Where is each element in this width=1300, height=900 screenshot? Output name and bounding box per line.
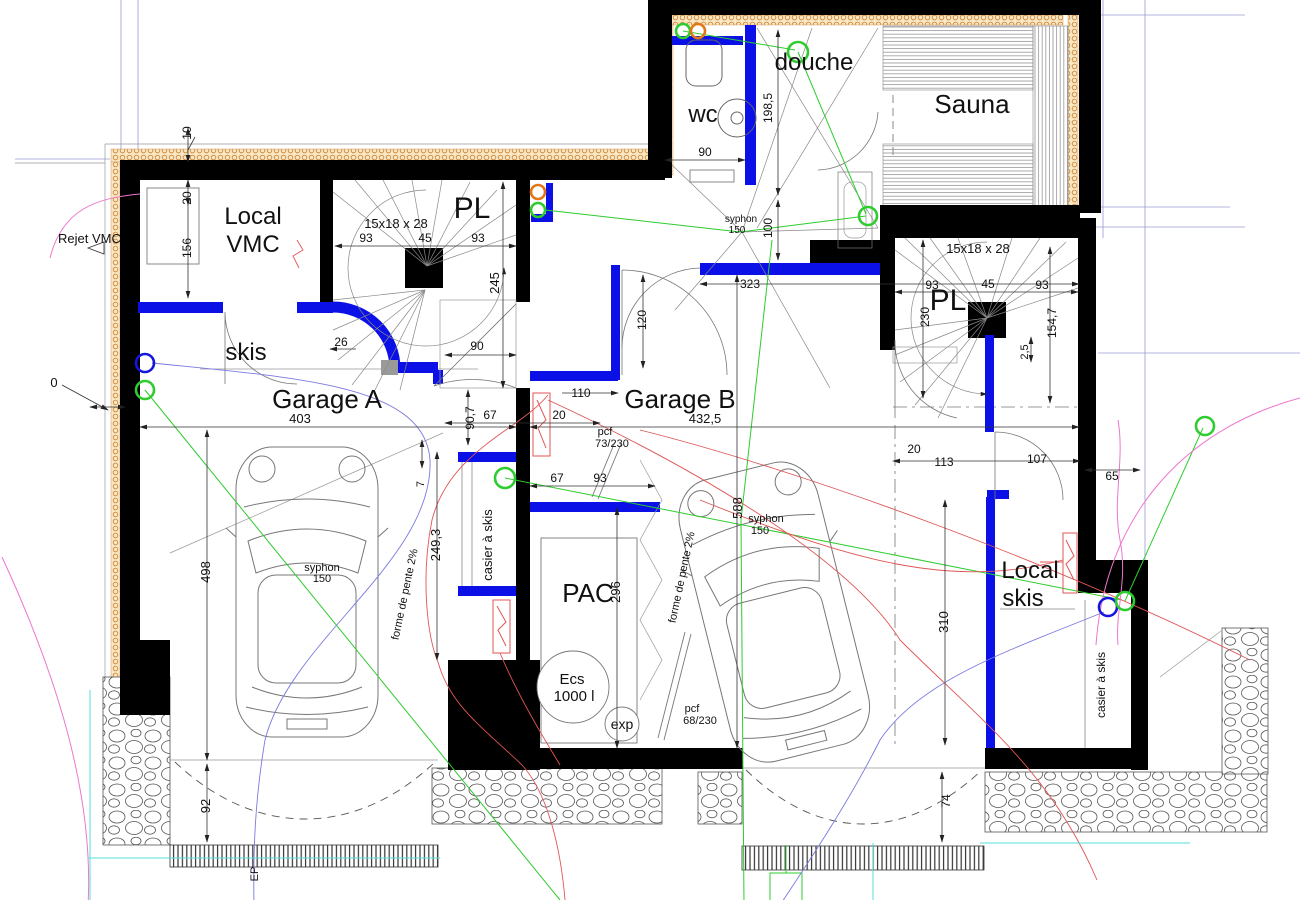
dim-90-7: 90,7 [463, 406, 477, 430]
dim-498: 498 [198, 561, 213, 583]
label-douche: douche [775, 49, 854, 76]
dim-65: 65 [1105, 469, 1119, 483]
dim-154-7: 154,7 [1045, 308, 1059, 338]
dim-26: 26 [334, 335, 348, 349]
dim-93: 93 [359, 231, 373, 245]
label-skis: skis [225, 339, 266, 366]
label-exp: exp [611, 716, 634, 732]
label-syphon-b-val: 150 [751, 525, 769, 537]
label-casier-mid: casier à skis [480, 509, 495, 581]
label-stair-spec-right: 15x18 x 28 [946, 241, 1010, 256]
dim-92: 92 [198, 799, 213, 813]
label-garage-a: Garage A [272, 384, 383, 414]
dim-20: 20 [552, 408, 566, 422]
outlet-orange [531, 185, 545, 199]
dim-249-3: 249,3 [428, 529, 443, 562]
dim-296: 296 [608, 581, 623, 603]
label-pcf-pac-val: 68/230 [683, 715, 717, 727]
washbasin [686, 40, 722, 86]
dim-93: 93 [593, 471, 607, 485]
label-ep: EP [249, 867, 261, 882]
label-pl-right: PL [930, 284, 967, 317]
label-pac: PAC [562, 578, 614, 608]
dim-74: 74 [939, 794, 953, 808]
label-stair-spec-left: 15x18 x 28 [364, 216, 428, 231]
label-garage-b: Garage B [624, 384, 735, 414]
label-ecs-1: Ecs [559, 671, 584, 688]
label-syphon-wc-val: 150 [729, 225, 746, 236]
dim-45: 45 [418, 231, 432, 245]
label-wc: wc [687, 101, 717, 128]
outlet-green [1196, 417, 1214, 435]
dim-310: 310 [936, 611, 951, 633]
dim-120: 120 [635, 310, 649, 330]
dim-67: 67 [550, 471, 564, 485]
dim-90-wc: 90 [698, 145, 712, 159]
dim-90: 90 [470, 339, 484, 353]
label-local-skis-2: skis [1002, 585, 1043, 612]
label-local-vmc-1: Local [224, 203, 281, 230]
dim-2-5: 2,5 [1019, 344, 1031, 359]
outlet-blue [1099, 598, 1117, 616]
dim-156: 156 [180, 238, 194, 258]
dim-113: 113 [934, 455, 953, 469]
dim-0: 0 [50, 375, 57, 390]
label-pcf-b-val: 73/230 [595, 438, 629, 450]
outlet-orange [691, 24, 705, 38]
label-casier-right: casier à skis [1094, 652, 1108, 718]
dim-230: 230 [918, 307, 932, 327]
label-pente-b: forme de pente 2% [667, 530, 698, 624]
dim-198-5: 198,5 [761, 93, 775, 123]
label-local-vmc-2: VMC [226, 231, 279, 258]
label-pcf-pac: pcf [685, 703, 701, 715]
label-sauna: Sauna [934, 89, 1010, 119]
floor-plan: Rejet VMC 0 10 20 156 Local VMC PL 15x18… [0, 0, 1300, 900]
dim-20: 20 [180, 191, 194, 205]
dim-107: 107 [1027, 452, 1047, 466]
dim-93: 93 [471, 231, 485, 245]
label-local-skis-1: Local [1001, 557, 1058, 584]
dim-67: 67 [483, 408, 497, 422]
floor-plan-canvas: Rejet VMC 0 10 20 156 Local VMC PL 15x18… [0, 0, 1300, 900]
dim-100: 100 [761, 218, 775, 238]
dim-7: 7 [415, 481, 427, 487]
outlet-green [859, 207, 877, 225]
dim-20: 20 [907, 442, 921, 456]
label-pcf-b: pcf [598, 426, 614, 438]
dim-45: 45 [981, 277, 995, 291]
dim-403: 403 [289, 411, 311, 426]
dim-93: 93 [1035, 278, 1049, 292]
label-pl-left: PL [454, 192, 491, 225]
label-rejet-vmc: Rejet VMC [58, 231, 121, 246]
dim-10: 10 [180, 126, 194, 140]
douche-floor-lines [672, 28, 878, 388]
label-syphon-b: syphon [748, 513, 783, 525]
dim-245: 245 [487, 272, 502, 294]
dim-588: 588 [730, 497, 745, 519]
dim-432-5: 432,5 [689, 411, 722, 426]
label-pente-a: forme de pente 2% [390, 547, 421, 641]
label-syphon-wc: syphon [725, 214, 757, 225]
car-a [226, 447, 388, 737]
dim-110: 110 [571, 386, 590, 400]
dim-323: 323 [740, 277, 760, 291]
label-syphon-a-val: 150 [313, 573, 331, 585]
label-ecs-2: 1000 l [554, 688, 595, 705]
